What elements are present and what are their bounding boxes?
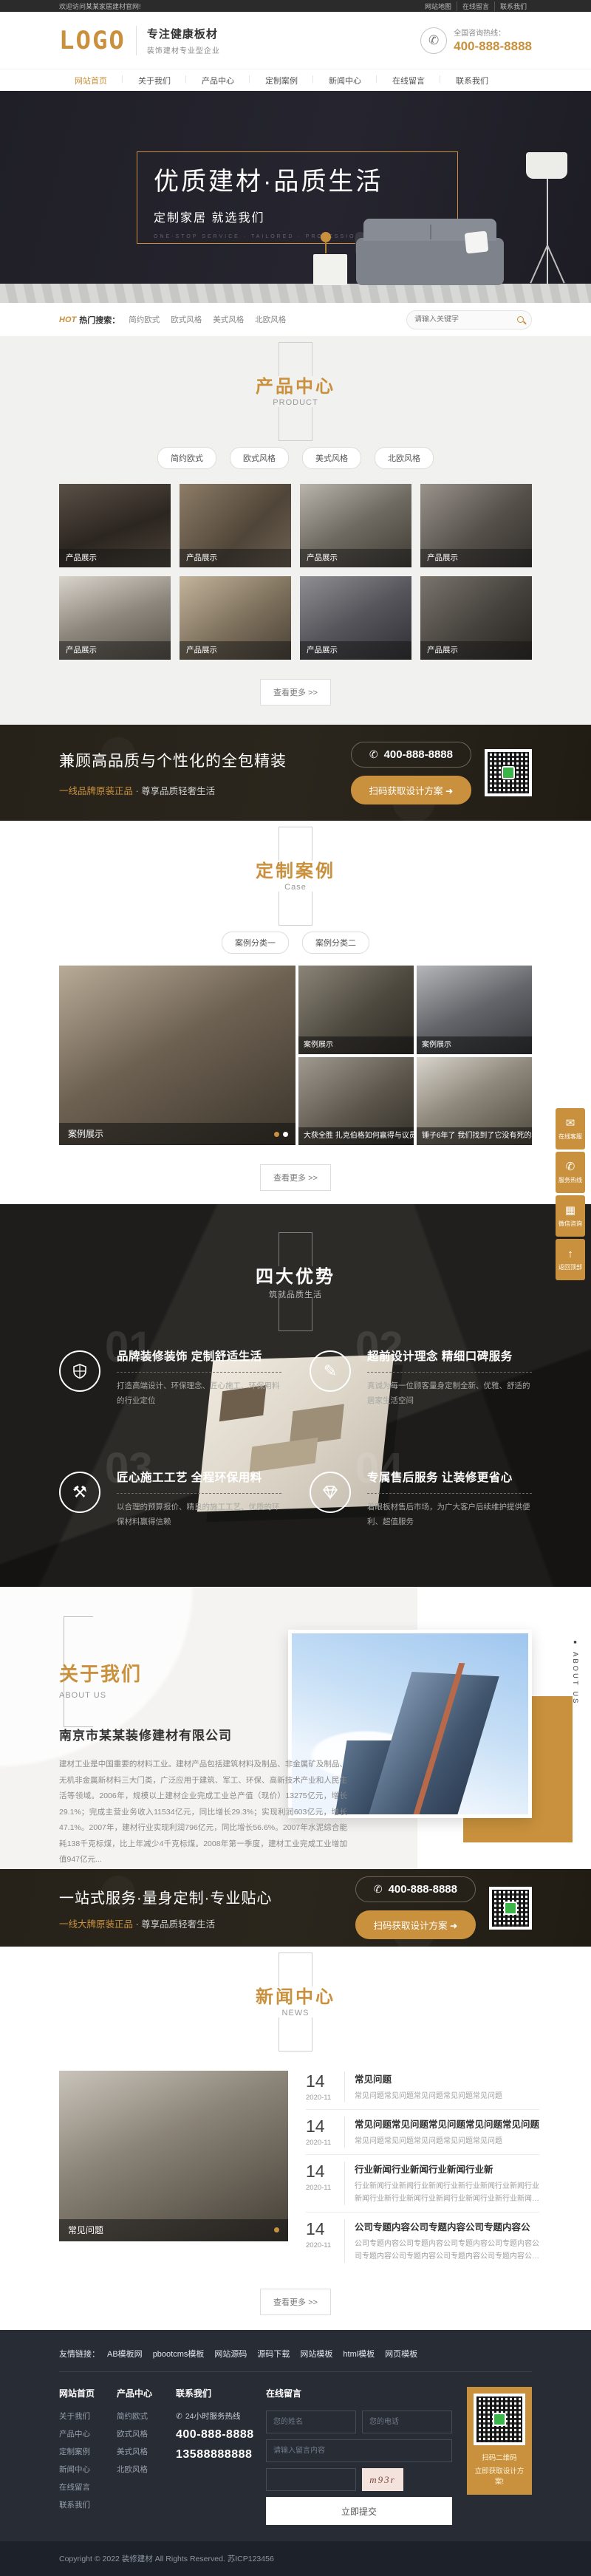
case-caption: 案例展示 xyxy=(59,1123,295,1145)
phone-icon: ✆ xyxy=(374,1883,383,1896)
cases-more-button[interactable]: 查看更多 >> xyxy=(260,1164,331,1191)
footer-divider xyxy=(59,2371,532,2372)
case-caption: 案例展示 xyxy=(417,1036,532,1054)
advantages-grid: 01 品牌装修装饰 定制舒适生活 打造高端设计、环保理念、匠心施工、环保用料的行… xyxy=(59,1347,532,1556)
filter-button[interactable]: 欧式风格 xyxy=(230,447,289,469)
hot-badge: HOT xyxy=(59,315,76,324)
news-item[interactable]: 142020-11 常见问题常见问题常见问题常见问题常见问题常见问题 xyxy=(306,2065,539,2110)
news-date: 2020-11 xyxy=(306,2139,344,2147)
case-filters: 案例分类一 案例分类二 xyxy=(59,932,532,954)
case-caption: 案例展示 xyxy=(298,1036,414,1054)
phone-icon: ✆ xyxy=(420,27,447,54)
news-day: 14 xyxy=(306,2071,344,2091)
carousel-dot[interactable] xyxy=(274,1132,279,1137)
cta-subtitle-gold: 一线大牌原装正品 xyxy=(59,1919,133,1930)
carousel-dot[interactable] xyxy=(283,1132,288,1137)
nav-item-contact[interactable]: 联系我们 xyxy=(440,75,504,86)
hotline: ✆ 全国咨询热线： 400-888-8888 xyxy=(420,27,532,54)
nav-item-products[interactable]: 产品中心 xyxy=(186,75,250,86)
footer-contact-column: 联系我们 ✆24小时服务热线 400-888-8888 13588888888 xyxy=(176,2387,266,2525)
advantage-title: 超前设计理念 精细口碑服务 xyxy=(367,1347,532,1364)
header: LOGO 专注健康板材 装饰建材专业型企业 ✆ 全国咨询热线： 400-888-… xyxy=(0,12,591,69)
product-caption: 产品展示 xyxy=(420,641,532,660)
case-caption: 大获全胜 扎克伯格如何赢得与议员的当 xyxy=(298,1127,414,1145)
advantages-title: 四大优势 xyxy=(59,1262,532,1288)
news-item-desc: 常见问题常见问题常见问题常见问题常见问题 xyxy=(355,2090,539,2102)
product-filters: 简约欧式 欧式风格 美式风格 北欧风格 xyxy=(59,447,532,469)
case-card[interactable]: 大获全胜 扎克伯格如何赢得与议员的当 xyxy=(298,1057,414,1146)
nav-item-news[interactable]: 新闻中心 xyxy=(313,75,377,86)
news-item[interactable]: 142020-11 公司专题内容公司专题内容公司专题内容公公司专题内容公司专题内… xyxy=(306,2213,539,2269)
product-card[interactable]: 产品展示 xyxy=(300,484,411,567)
topbar: 欢迎访问某某家居建材官网! 网站地图 在线留言 联系我们 xyxy=(0,0,591,12)
cta-phone-pill[interactable]: ✆ 400-888-8888 xyxy=(351,742,471,768)
news-heading: 新闻中心 NEWS xyxy=(59,1947,532,2057)
qr-caption-2: 立即获取设计方案! xyxy=(474,2465,525,2486)
phone-icon: ✆ xyxy=(176,2412,182,2421)
widget-label: 服务热线 xyxy=(558,1176,582,1184)
design-pencil-icon: ✎ xyxy=(310,1350,351,1392)
news-item-title: 常见问题常见问题常见问题常见问题常见问题 xyxy=(355,2117,539,2131)
news-date: 2020-11 xyxy=(306,2184,344,2192)
wechat-qr-code xyxy=(489,1887,532,1930)
cases-title: 定制案例 xyxy=(59,856,532,882)
wechat-consult-button[interactable]: ▦ 微信咨询 xyxy=(556,1195,585,1237)
cta-title: 兼顾高品质与个性化的全包精装 xyxy=(59,749,287,771)
friend-link[interactable]: html模板 xyxy=(343,2348,375,2360)
slogan-main: 专注健康板材 xyxy=(147,26,220,41)
product-card[interactable]: 产品展示 xyxy=(59,484,171,567)
cases-section: 定制案例 Case 案例分类一 案例分类二 案例展示 案例展示 案例展示 大获全… xyxy=(0,821,591,1204)
case-gallery: 案例展示 案例展示 案例展示 大获全胜 扎克伯格如何赢得与议员的当 锤子6年了 … xyxy=(59,966,532,1145)
online-service-button[interactable]: ✉ 在线客服 xyxy=(556,1108,585,1149)
footer-qr-code xyxy=(474,2394,525,2445)
about-paragraph: 建材工业是中国重要的材料工业。建材产品包括建筑材料及制品、非金属矿及制品、无机非… xyxy=(59,1757,347,1868)
products-subtitle: PRODUCT xyxy=(59,398,532,407)
case-grid: 案例展示 案例展示 大获全胜 扎克伯格如何赢得与议员的当 锤子6年了 我们找到了… xyxy=(298,966,532,1145)
slogan-sub: 装饰建材专业型企业 xyxy=(147,44,220,55)
friend-links-label: 友情链接： xyxy=(59,2348,100,2360)
footer-message-form: 在线留言 m93r 立即提交 xyxy=(266,2387,452,2525)
diamond-icon xyxy=(310,1472,351,1513)
news-subtitle: NEWS xyxy=(59,2009,532,2018)
hotline-label: 全国咨询热线： xyxy=(454,27,532,38)
news-item[interactable]: 142020-11 行业新闻行业新闻行业新闻行业新行业新闻行业新闻行业新闻行业新… xyxy=(306,2155,539,2213)
advantages-heading: 四大优势 筑就品质生活 xyxy=(59,1226,532,1337)
news-list: 142020-11 常见问题常见问题常见问题常见问题常见问题常见问题 14202… xyxy=(288,2065,539,2269)
footer-qr-panel: 扫码二维码 立即获取设计方案! xyxy=(467,2387,532,2495)
news-date: 2020-11 xyxy=(306,2094,344,2102)
captcha-image[interactable]: m93r xyxy=(362,2468,403,2491)
case-caption: 锤子6年了 我们找到了它没有死的秘密 xyxy=(417,1127,532,1145)
product-caption: 产品展示 xyxy=(300,641,411,660)
news-item-title: 公司专题内容公司专题内容公司专题内容公 xyxy=(355,2219,539,2233)
slogan: 专注健康板材 装饰建材专业型企业 xyxy=(136,26,220,55)
arrow-up-icon: ↑ xyxy=(567,1248,573,1260)
shield-icon xyxy=(59,1350,100,1392)
case-card[interactable]: 案例展示 xyxy=(298,966,414,1054)
footer-form-title: 在线留言 xyxy=(266,2387,452,2399)
back-to-top-button[interactable]: ↑ 返回顶部 xyxy=(556,1239,585,1280)
products-heading: 产品中心 PRODUCT xyxy=(59,336,532,447)
cta-subtitle-rest: · 尊享品质轻奢生活 xyxy=(133,1919,215,1930)
form-phone-input[interactable] xyxy=(362,2411,452,2433)
case-image xyxy=(59,966,295,1145)
news-image xyxy=(59,2071,288,2241)
floating-widgets: ✉ 在线客服 ✆ 服务热线 ▦ 微信咨询 ↑ 返回顶部 xyxy=(556,1108,585,1282)
bracket-decoration xyxy=(279,2018,312,2051)
hot-keyword[interactable]: 欧式风格 xyxy=(171,314,202,325)
footer-link[interactable]: 美式风格 xyxy=(117,2446,176,2457)
side-table-decoration xyxy=(313,254,347,285)
bracket-decoration xyxy=(279,407,312,441)
footer-link[interactable]: 新闻中心 xyxy=(59,2464,117,2475)
qr-pattern xyxy=(492,1890,529,1927)
footer: 友情链接： AB模板网 pbootcms模板 网站源码 源码下载 网站模板 ht… xyxy=(0,2330,591,2576)
nav-item-home[interactable]: 网站首页 xyxy=(59,75,123,86)
search-box xyxy=(406,310,532,329)
product-grid: 产品展示 产品展示 产品展示 产品展示 产品展示 产品展示 产品展示 产品展示 xyxy=(59,484,532,660)
friend-link[interactable]: 网站源码 xyxy=(214,2348,247,2360)
widget-label: 在线客服 xyxy=(558,1132,582,1141)
product-card[interactable]: 产品展示 xyxy=(300,576,411,660)
message-link[interactable]: 在线留言 xyxy=(457,1,494,11)
bracket-decoration xyxy=(279,1297,312,1331)
qr-caption-1: 扫码二维码 xyxy=(474,2452,525,2462)
friend-link[interactable]: 源码下载 xyxy=(257,2348,290,2360)
footer-phone-2: 13588888888 xyxy=(176,2448,266,2461)
service-hotline-button[interactable]: ✆ 服务热线 xyxy=(556,1152,585,1193)
form-submit-button[interactable]: 立即提交 xyxy=(266,2497,452,2525)
friend-link[interactable]: 网站模板 xyxy=(300,2348,332,2360)
friend-link[interactable]: 网页模板 xyxy=(385,2348,417,2360)
products-section: 产品中心 PRODUCT 简约欧式 欧式风格 美式风格 北欧风格 产品展示 产品… xyxy=(0,336,591,725)
floor-lamp-leg xyxy=(547,245,565,284)
footer-link[interactable]: 北欧风格 xyxy=(117,2464,176,2475)
advantages-section: 四大优势 筑就品质生活 01 品牌装修装饰 定制舒适生活 打造高端设计、环保理念… xyxy=(0,1204,591,1587)
about-company-name: 南京市某某装修建材有限公司 xyxy=(59,1725,347,1743)
news-item-title: 常见问题 xyxy=(355,2071,539,2085)
topbar-links: 网站地图 在线留言 联系我们 xyxy=(420,1,532,11)
form-name-input[interactable] xyxy=(266,2411,356,2433)
products-title: 产品中心 xyxy=(59,372,532,397)
qr-icon: ▦ xyxy=(565,1205,575,1216)
advantages-subtitle: 筑就品质生活 xyxy=(59,1288,532,1300)
hero-banner: 优质建材·品质生活 定制家居 就选我们 ONE-STOP SERVICE · T… xyxy=(0,91,591,303)
about-section: 关于我们 ABOUT US 南京市某某装修建材有限公司 建材工业是中国重要的材料… xyxy=(0,1587,591,1869)
cta-subtitle-rest: · 尊享品质轻奢生活 xyxy=(133,786,215,796)
news-item-desc: 常见问题常见问题常见问题常见问题常见问题 xyxy=(355,2135,539,2148)
cta-design-button[interactable]: 扫码获取设计方案 ➜ xyxy=(355,1910,476,1939)
hot-keyword[interactable]: 简约欧式 xyxy=(129,314,160,325)
case-filter-button[interactable]: 案例分类二 xyxy=(302,932,369,954)
hot-keyword[interactable]: 北欧风格 xyxy=(255,314,286,325)
footer-link[interactable]: 定制案例 xyxy=(59,2446,117,2457)
product-caption: 产品展示 xyxy=(420,549,532,567)
footer-link[interactable]: 关于我们 xyxy=(59,2411,117,2422)
cases-subtitle: Case xyxy=(59,883,532,892)
dashed-divider xyxy=(367,1372,532,1373)
news-day: 14 xyxy=(306,2162,344,2182)
dashed-divider xyxy=(117,1493,281,1494)
form-message-input[interactable] xyxy=(266,2439,452,2462)
floor-lamp-leg xyxy=(530,245,548,284)
advantage-item: 04 专属售后服务 让装修更省心 着眼板材售后市场，为广大客户后续维护提供便利、… xyxy=(310,1469,532,1556)
product-caption: 产品展示 xyxy=(59,641,171,660)
floor-lamp-shade xyxy=(526,152,567,179)
advantage-desc: 以合理的预算报价、精良的施工工艺、优质的环保材料赢得信赖 xyxy=(117,1500,281,1530)
footer-bottom-bar: Copyright © 2022 装修建材 All Rights Reserve… xyxy=(0,2541,591,2576)
pillow-decoration xyxy=(465,231,489,254)
filter-button[interactable]: 美式风格 xyxy=(302,447,361,469)
news-day: 14 xyxy=(306,2219,344,2239)
hot-search-bar: HOT 热门搜索： 简约欧式 欧式风格 美式风格 北欧风格 xyxy=(0,303,591,336)
form-captcha-input[interactable] xyxy=(266,2468,356,2491)
wechat-qr-code xyxy=(485,749,532,796)
carousel-dot[interactable] xyxy=(274,2227,279,2232)
product-caption: 产品展示 xyxy=(180,549,291,567)
cta-phone-number: 400-888-8888 xyxy=(389,1883,457,1896)
cta-banner-2: 一站式服务·量身定制·专业贴心 一线大牌原装正品 · 尊享品质轻奢生活 ✆ 40… xyxy=(0,1869,591,1947)
floor-lamp-pole xyxy=(547,174,548,285)
widget-label: 微信咨询 xyxy=(558,1220,582,1228)
about-vertical-label: ABOUT US xyxy=(571,1640,579,1705)
friend-link[interactable]: pbootcms模板 xyxy=(153,2348,205,2360)
cta-phone-pill[interactable]: ✆ 400-888-8888 xyxy=(355,1876,476,1902)
search-input[interactable] xyxy=(414,315,517,324)
search-icon[interactable] xyxy=(517,316,524,323)
footer-service-label: 24小时服务热线 xyxy=(185,2412,241,2421)
advantage-title: 专属售后服务 让装修更省心 xyxy=(367,1469,532,1485)
bracket-decoration xyxy=(279,892,312,926)
footer-link[interactable]: 产品中心 xyxy=(59,2428,117,2439)
sitemap-link[interactable]: 网站地图 xyxy=(420,1,457,11)
advantage-item: 03 ⚒ 匠心施工工艺 全程环保用料 以合理的预算报价、精良的施工工艺、优质的环… xyxy=(59,1469,281,1556)
advantage-desc: 打造高端设计、环保理念、匠心施工、环保用料的行业定位 xyxy=(117,1379,281,1409)
products-more-button[interactable]: 查看更多 >> xyxy=(260,679,331,706)
table-lamp-decoration xyxy=(321,232,331,242)
news-section: 新闻中心 NEWS 常见问题 142020-11 常见问题常见问题常见问题常见问… xyxy=(0,1947,591,2330)
about-subtitle: ABOUT US xyxy=(59,1691,347,1700)
case-featured[interactable]: 案例展示 xyxy=(59,966,295,1145)
phone-icon: ✆ xyxy=(566,1161,575,1172)
nav-item-about[interactable]: 关于我们 xyxy=(123,75,186,86)
tools-icon: ⚒ xyxy=(59,1472,100,1513)
cta-phone-number: 400-888-8888 xyxy=(384,748,453,761)
footer-column-title: 联系我们 xyxy=(176,2387,266,2399)
advantage-title: 品牌装修装饰 定制舒适生活 xyxy=(117,1347,281,1364)
footer-link[interactable]: 联系我们 xyxy=(59,2499,117,2510)
advantage-title: 匠心施工工艺 全程环保用料 xyxy=(117,1469,281,1485)
case-filter-button[interactable]: 案例分类一 xyxy=(222,932,289,954)
product-card[interactable]: 产品展示 xyxy=(59,576,171,660)
footer-phone-1: 400-888-8888 xyxy=(176,2428,266,2442)
product-card[interactable]: 产品展示 xyxy=(180,484,291,567)
product-card[interactable]: 产品展示 xyxy=(420,576,532,660)
cta-subtitle-gold: 一线品牌原装正品 xyxy=(59,786,133,796)
product-caption: 产品展示 xyxy=(59,549,171,567)
welcome-text: 欢迎访问某某家居建材官网! xyxy=(59,1,141,11)
footer-products-column: 产品中心 简约欧式 欧式风格 美式风格 北欧风格 xyxy=(117,2387,176,2525)
hot-keyword[interactable]: 美式风格 xyxy=(213,314,244,325)
product-caption: 产品展示 xyxy=(180,641,291,660)
product-card[interactable]: 产品展示 xyxy=(420,484,532,567)
nav-item-message[interactable]: 在线留言 xyxy=(377,75,440,86)
news-item-title: 行业新闻行业新闻行业新闻行业新 xyxy=(355,2162,539,2176)
main-nav: 网站首页 关于我们 产品中心 定制案例 新闻中心 在线留言 联系我们 xyxy=(0,69,591,91)
news-item-desc: 公司专题内容公司专题内容公司专题内容公司专题内容公司专题内容公司专题内容公司专题… xyxy=(355,2238,539,2263)
friend-links: 友情链接： AB模板网 pbootcms模板 网站源码 源码下载 网站模板 ht… xyxy=(59,2348,532,2360)
qr-pattern xyxy=(476,2396,522,2442)
news-item[interactable]: 142020-11 常见问题常见问题常见问题常见问题常见问题常见问题常见问题常见… xyxy=(306,2110,539,2155)
news-featured-caption: 常见问题 xyxy=(59,2219,288,2241)
hot-search-label: 热门搜索： xyxy=(79,314,120,326)
case-card[interactable]: 锤子6年了 我们找到了它没有死的秘密 xyxy=(417,1057,532,1146)
contact-link[interactable]: 联系我们 xyxy=(494,1,532,11)
product-caption: 产品展示 xyxy=(300,549,411,567)
advantage-desc: 真诚为每一位顾客量身定制全新、优雅、舒适的居家生活空间 xyxy=(367,1379,532,1409)
footer-column-title: 产品中心 xyxy=(117,2387,176,2399)
cta-banner-1: 兼顾高品质与个性化的全包精装 一线品牌原装正品 · 尊享品质轻奢生活 ✆ 400… xyxy=(0,725,591,821)
hotline-number: 400-888-8888 xyxy=(454,39,532,54)
friend-link[interactable]: AB模板网 xyxy=(107,2348,143,2360)
news-featured[interactable]: 常见问题 xyxy=(59,2071,288,2241)
news-date: 2020-11 xyxy=(306,2241,344,2249)
advantage-item: 01 品牌装修装饰 定制舒适生活 打造高端设计、环保理念、匠心施工、环保用料的行… xyxy=(59,1347,281,1435)
nav-item-cases[interactable]: 定制案例 xyxy=(250,75,313,86)
filter-button[interactable]: 北欧风格 xyxy=(375,447,434,469)
product-card[interactable]: 产品展示 xyxy=(180,576,291,660)
about-title: 关于我们 xyxy=(59,1659,347,1687)
case-card[interactable]: 案例展示 xyxy=(417,966,532,1054)
advantage-desc: 着眼板材售后市场，为广大客户后续维护提供便利、超值服务 xyxy=(367,1500,532,1530)
news-title: 新闻中心 xyxy=(59,1982,532,2008)
hero-title: 优质建材·品质生活 xyxy=(154,161,425,197)
footer-nav-column: 网站首页 关于我们 产品中心 定制案例 新闻中心 在线留言 联系我们 xyxy=(59,2387,117,2525)
cases-heading: 定制案例 Case xyxy=(59,821,532,932)
advantage-item: 02 ✎ 超前设计理念 精细口碑服务 真诚为每一位顾客量身定制全新、优雅、舒适的… xyxy=(310,1347,532,1435)
cta-title: 一站式服务·量身定制·专业贴心 xyxy=(59,1886,272,1907)
footer-column-title: 网站首页 xyxy=(59,2387,117,2399)
copyright: Copyright © 2022 装修建材 All Rights Reserve… xyxy=(59,2553,274,2564)
dashed-divider xyxy=(117,1372,281,1373)
news-more-button[interactable]: 查看更多 >> xyxy=(260,2289,331,2315)
widget-label: 返回顶部 xyxy=(558,1263,582,1271)
hero-floor-decoration xyxy=(0,284,591,303)
footer-link[interactable]: 欧式风格 xyxy=(117,2428,176,2439)
phone-icon: ✆ xyxy=(369,748,378,761)
filter-button[interactable]: 简约欧式 xyxy=(157,447,216,469)
logo[interactable]: LOGO xyxy=(59,26,126,55)
footer-link[interactable]: 简约欧式 xyxy=(117,2411,176,2422)
footer-link[interactable]: 在线留言 xyxy=(59,2481,117,2493)
dashed-divider xyxy=(367,1493,532,1494)
chat-icon: ✉ xyxy=(566,1118,575,1129)
news-item-desc: 行业新闻行业新闻行业新闻行业新行业新闻行业新闻行业新闻行业新行业新闻行业新闻行业… xyxy=(355,2180,539,2205)
cta-design-button[interactable]: 扫码获取设计方案 ➜ xyxy=(351,776,471,804)
qr-pattern xyxy=(488,752,529,793)
news-day: 14 xyxy=(306,2117,344,2136)
carousel-dots xyxy=(274,1132,288,1137)
